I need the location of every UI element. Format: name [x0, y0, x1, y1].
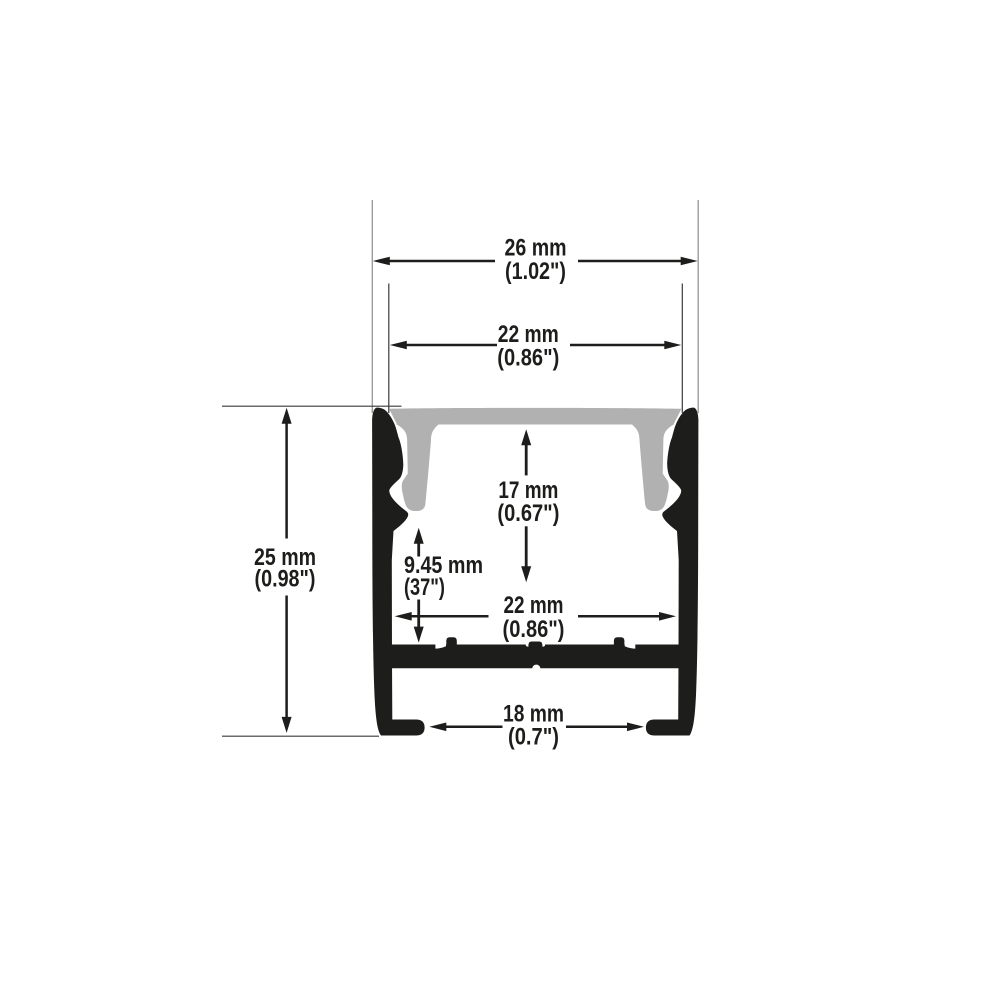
svg-text:(1.02"): (1.02"): [505, 258, 566, 285]
svg-text:(0.98"): (0.98"): [255, 566, 316, 593]
svg-text:(37"): (37"): [404, 574, 445, 601]
svg-text:(0.86"): (0.86"): [503, 616, 565, 643]
svg-text:(0.7"): (0.7"): [508, 724, 559, 751]
svg-text:(0.67"): (0.67"): [497, 500, 559, 527]
svg-text:22 mm: 22 mm: [504, 592, 564, 619]
svg-text:(0.86"): (0.86"): [497, 345, 559, 372]
